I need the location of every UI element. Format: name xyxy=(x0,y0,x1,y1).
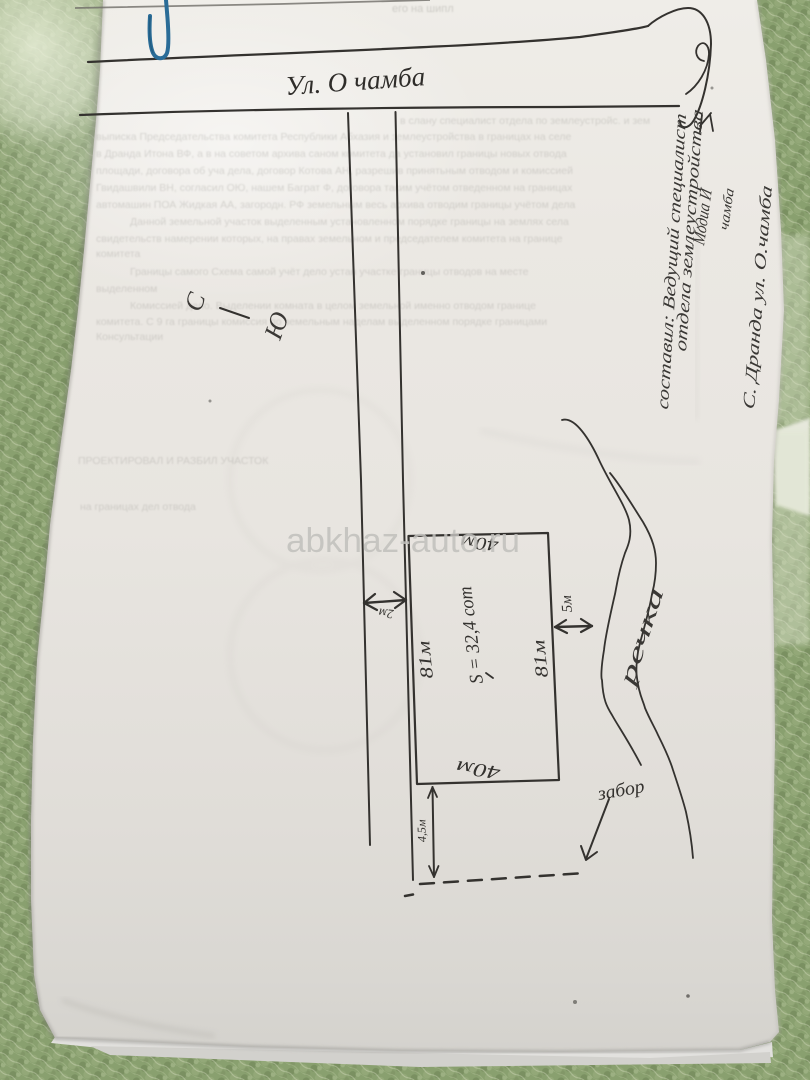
svg-text:его на шипл: его на шипл xyxy=(392,3,454,15)
svg-text:2м: 2м xyxy=(378,605,394,621)
svg-text:ПРОЕКТИРОВАЛ И РАЗБИЛ УЧАСТОК: ПРОЕКТИРОВАЛ И РАЗБИЛ УЧАСТОК xyxy=(78,455,269,467)
svg-text:автомашин ПОА Жидкая АА, загор: автомашин ПОА Жидкая АА, загородн. РФ зе… xyxy=(96,199,575,211)
svg-text:Консультации: Консультации xyxy=(96,331,163,343)
svg-text:abkhaz-auto.ru: abkhaz-auto.ru xyxy=(286,522,520,560)
svg-text:5м: 5м xyxy=(559,594,576,613)
svg-text:81м: 81м xyxy=(413,639,437,680)
svg-text:Границы самого Схема самой учё: Границы самого Схема самой учёт дело уст… xyxy=(130,266,529,278)
svg-text:площади, договора об уча дела,: площади, договора об уча дела, договор К… xyxy=(96,165,573,177)
svg-text:выделенном: выделенном xyxy=(96,283,157,295)
svg-text:в Дранда Итона ВФ, а в на сове: в Дранда Итона ВФ, а в на советом архива… xyxy=(96,148,567,160)
svg-text:4,5м: 4,5м xyxy=(414,819,429,842)
svg-text:свидетельств намерении которых: свидетельств намерении которых, на права… xyxy=(96,233,563,245)
svg-text:комитета: комитета xyxy=(96,248,141,260)
svg-text:81м: 81м xyxy=(528,638,552,679)
svg-text:в слану специалист отдела по з: в слану специалист отдела по землеустрой… xyxy=(400,115,650,127)
svg-text:Данной земельной участок выдел: Данной земельной участок выделенным уста… xyxy=(130,216,569,228)
svg-text:выписка Председательства комит: выписка Председательства комитета Респуб… xyxy=(96,131,571,143)
svg-text:Гвидашвили ВН, согласил ОЮ, на: Гвидашвили ВН, согласил ОЮ, нашем Баграт… xyxy=(96,182,573,194)
svg-text:на границах дел отвода: на границах дел отвода xyxy=(80,501,196,513)
svg-text:комитета. С 9 га границы комис: комитета. С 9 га границы комиссия по зем… xyxy=(96,316,547,328)
